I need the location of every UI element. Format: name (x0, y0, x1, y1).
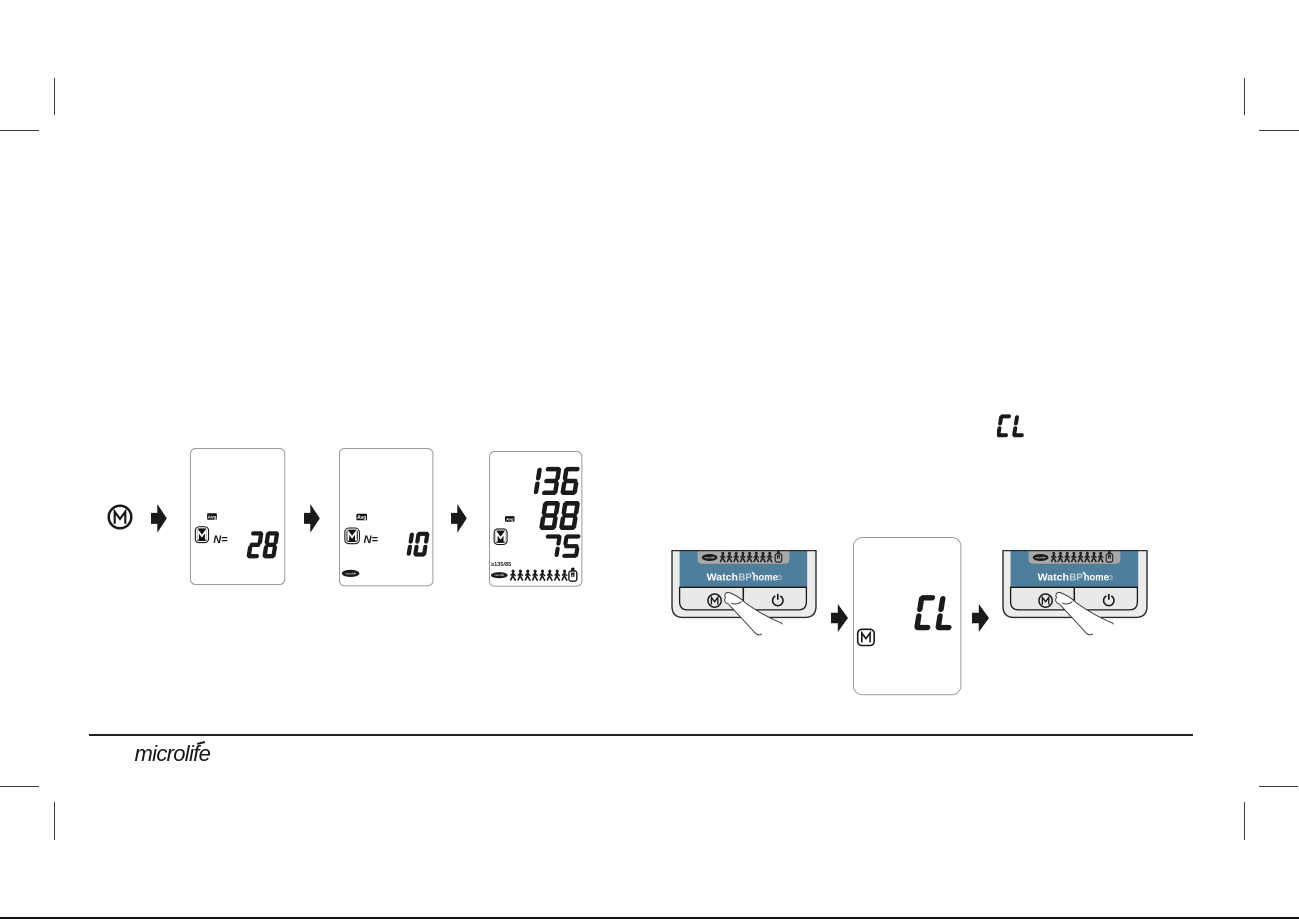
svg-text:microlife: microlife (1036, 556, 1047, 560)
svg-text:N=: N= (364, 534, 379, 546)
svg-text:BP: BP (738, 573, 752, 584)
svg-text:Avg: Avg (207, 514, 216, 520)
svg-text:microlife: microlife (704, 556, 715, 560)
svg-text:home: home (1084, 573, 1109, 584)
svg-text:N=: N= (213, 534, 228, 546)
svg-text:Avg: Avg (506, 516, 514, 521)
svg-text:BP: BP (1070, 573, 1084, 584)
svg-text:≥135/85: ≥135/85 (491, 561, 511, 567)
svg-text:home: home (752, 573, 777, 584)
svg-text:Watch: Watch (1038, 573, 1069, 584)
svg-text:Avg: Avg (357, 515, 366, 521)
svg-text:microlife: microlife (345, 571, 356, 575)
svg-text:microlife: microlife (495, 573, 505, 577)
svg-text:Watch: Watch (706, 573, 737, 584)
